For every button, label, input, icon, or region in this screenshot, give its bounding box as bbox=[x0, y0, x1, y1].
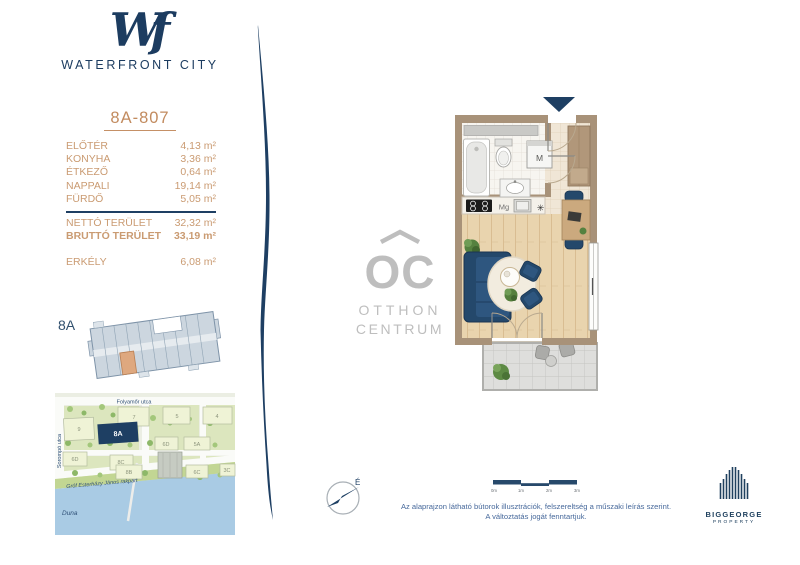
biggeorge-logo-icon bbox=[712, 463, 756, 503]
scale-ticks: 0m 1m 2m 3m bbox=[491, 488, 580, 493]
room-label: ELŐTÉR bbox=[66, 140, 108, 153]
svg-text:6C: 6C bbox=[193, 470, 200, 476]
compass: É bbox=[318, 472, 370, 520]
watermark-monogram: OC bbox=[352, 249, 448, 296]
brand-block: Wf WATERFRONT CITY bbox=[40, 2, 240, 72]
unit-number: 8A-807 bbox=[40, 109, 240, 131]
balcony-window bbox=[589, 243, 598, 330]
otthon-centrum-watermark: OC OTTHON CENTRUM bbox=[352, 229, 448, 337]
room-value: 4,13 m² bbox=[180, 140, 216, 153]
svg-text:3m: 3m bbox=[574, 488, 580, 493]
floor-plan: Mg ✳ M bbox=[440, 90, 620, 400]
gross-area-row: BRUTTÓ TERÜLET 33,19 m² bbox=[66, 230, 216, 243]
river-label: Duna bbox=[62, 510, 78, 517]
room-value: 19,14 m² bbox=[175, 180, 216, 193]
coffee-table bbox=[501, 268, 520, 287]
table-row: FÜRDŐ 5,05 m² bbox=[66, 193, 216, 206]
watermark-line1: OTTHON bbox=[352, 302, 448, 318]
fridge-snowflake-icon: ✳ bbox=[537, 203, 545, 213]
disclaimer-line1: Az alaprajzon látható bútorok illusztrác… bbox=[390, 502, 682, 512]
balcony-label: ERKÉLY bbox=[66, 256, 107, 269]
floorplate-label: 8A bbox=[58, 317, 76, 333]
table-separator bbox=[66, 211, 216, 213]
room-value: 5,05 m² bbox=[180, 193, 216, 206]
washer-label: M bbox=[536, 153, 543, 163]
svg-text:8C: 8C bbox=[117, 460, 124, 466]
floorplan-sheet: Wf WATERFRONT CITY 8A-807 ELŐTÉR 4,13 m²… bbox=[0, 0, 800, 565]
gross-value: 33,19 m² bbox=[174, 230, 216, 243]
disclaimer-line2: A változtatás jogát fenntartjuk. bbox=[390, 512, 682, 522]
table-row: KONYHA 3,36 m² bbox=[66, 153, 216, 166]
highlighted-unit bbox=[120, 351, 137, 375]
washbasin bbox=[500, 179, 530, 197]
entrance-marker-icon bbox=[543, 97, 575, 112]
balcony-value: 6,08 m² bbox=[180, 256, 216, 269]
toilet bbox=[495, 139, 512, 167]
bathroom-shelf bbox=[464, 126, 538, 136]
map-label-8a: 8A bbox=[113, 431, 122, 439]
rug-plant bbox=[505, 289, 518, 302]
room-label: ÉTKEZŐ bbox=[66, 166, 108, 179]
svg-text:3C: 3C bbox=[223, 468, 230, 474]
room-value: 3,36 m² bbox=[180, 153, 216, 166]
microwave-label: Mg bbox=[499, 203, 509, 212]
net-label: NETTÓ TERÜLET bbox=[66, 217, 152, 230]
north-label: É bbox=[355, 478, 360, 487]
brand-name: WATERFRONT CITY bbox=[40, 58, 240, 72]
area-table: ELŐTÉR 4,13 m² KONYHA 3,36 m² ÉTKEZŐ 0,6… bbox=[66, 140, 216, 270]
room-value: 0,64 m² bbox=[180, 166, 216, 179]
divider-curve bbox=[248, 18, 280, 530]
svg-text:0m: 0m bbox=[491, 488, 497, 493]
table-row: ÉTKEZŐ 0,64 m² bbox=[66, 166, 216, 179]
svg-text:5: 5 bbox=[175, 414, 178, 420]
table-row: ELŐTÉR 4,13 m² bbox=[66, 140, 216, 153]
street-label-top: Folyamőr utca bbox=[117, 400, 153, 406]
room-label: FÜRDŐ bbox=[66, 193, 103, 206]
disclaimer: Az alaprajzon látható bútorok illusztrác… bbox=[390, 502, 682, 522]
svg-text:9: 9 bbox=[77, 427, 80, 433]
svg-text:5A: 5A bbox=[194, 442, 201, 448]
watermark-line2: CENTRUM bbox=[352, 321, 448, 337]
desk bbox=[562, 191, 590, 249]
site-map: 9 7 5 4 6D 5A 6D 8C 8B 6C 3C 8A Folyamőr… bbox=[50, 393, 240, 535]
svg-text:7: 7 bbox=[132, 415, 135, 421]
developer-logo: BIGGEORGE PROPERTY bbox=[696, 463, 772, 525]
svg-text:1m: 1m bbox=[518, 488, 524, 493]
north-arrow-icon bbox=[327, 487, 359, 507]
room-label: NAPPALI bbox=[66, 180, 110, 193]
developer-name: BIGGEORGE bbox=[696, 510, 772, 519]
balcony-area-row: ERKÉLY 6,08 m² bbox=[66, 256, 216, 269]
gross-label: BRUTTÓ TERÜLET bbox=[66, 230, 161, 243]
wf-logo-icon: Wf bbox=[40, 2, 240, 58]
svg-text:6D: 6D bbox=[162, 442, 169, 448]
street-label-left: Sorompó utca bbox=[57, 433, 63, 468]
svg-text:2m: 2m bbox=[546, 488, 552, 493]
kitchen-sink bbox=[514, 200, 531, 213]
svg-text:6D: 6D bbox=[71, 457, 78, 463]
bathtub bbox=[464, 139, 490, 196]
room-label: KONYHA bbox=[66, 153, 110, 166]
scale-bar: 0m 1m 2m 3m bbox=[486, 477, 586, 497]
svg-text:8B: 8B bbox=[126, 470, 133, 476]
floorplate-diagram: 8A bbox=[50, 298, 240, 390]
roof-icon bbox=[378, 229, 422, 244]
svg-text:4: 4 bbox=[215, 414, 218, 420]
table-row: NAPPALI 19,14 m² bbox=[66, 180, 216, 193]
developer-sub: PROPERTY bbox=[696, 520, 772, 525]
net-area-row: NETTÓ TERÜLET 32,32 m² bbox=[66, 217, 216, 230]
cooktop bbox=[466, 200, 492, 213]
net-value: 32,32 m² bbox=[175, 217, 216, 230]
